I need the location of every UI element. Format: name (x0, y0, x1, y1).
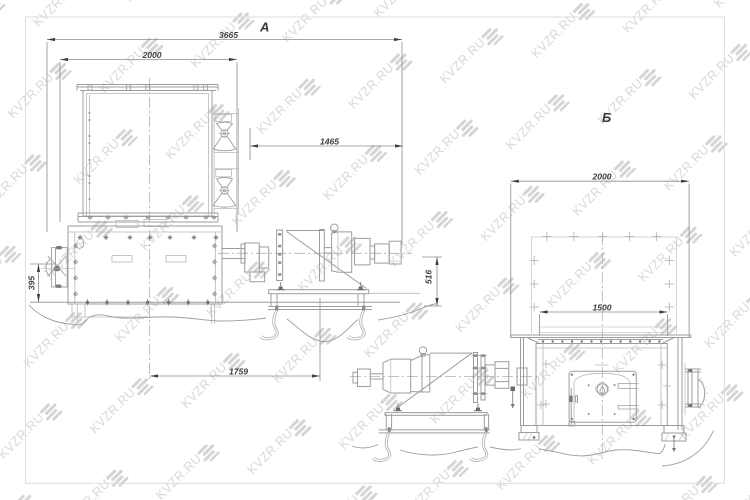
svg-text:1759: 1759 (229, 366, 248, 376)
svg-text:2000: 2000 (141, 50, 161, 60)
svg-text:1465: 1465 (320, 137, 339, 147)
svg-text:А: А (259, 20, 269, 35)
svg-text:3665: 3665 (219, 30, 238, 40)
svg-text:516: 516 (424, 270, 434, 285)
svg-text:Б: Б (602, 110, 611, 125)
svg-text:395: 395 (27, 276, 37, 291)
svg-text:2000: 2000 (591, 172, 611, 182)
